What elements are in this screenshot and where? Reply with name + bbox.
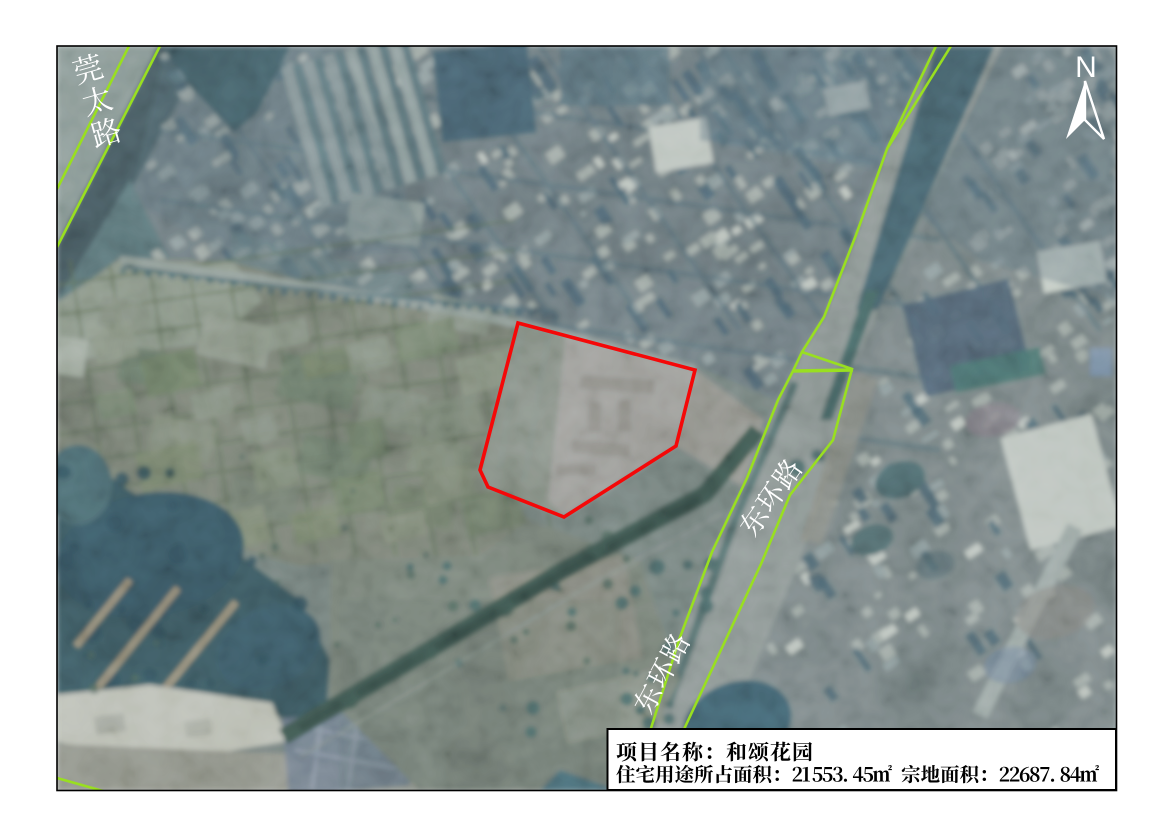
svg-text:N: N (1075, 51, 1097, 84)
